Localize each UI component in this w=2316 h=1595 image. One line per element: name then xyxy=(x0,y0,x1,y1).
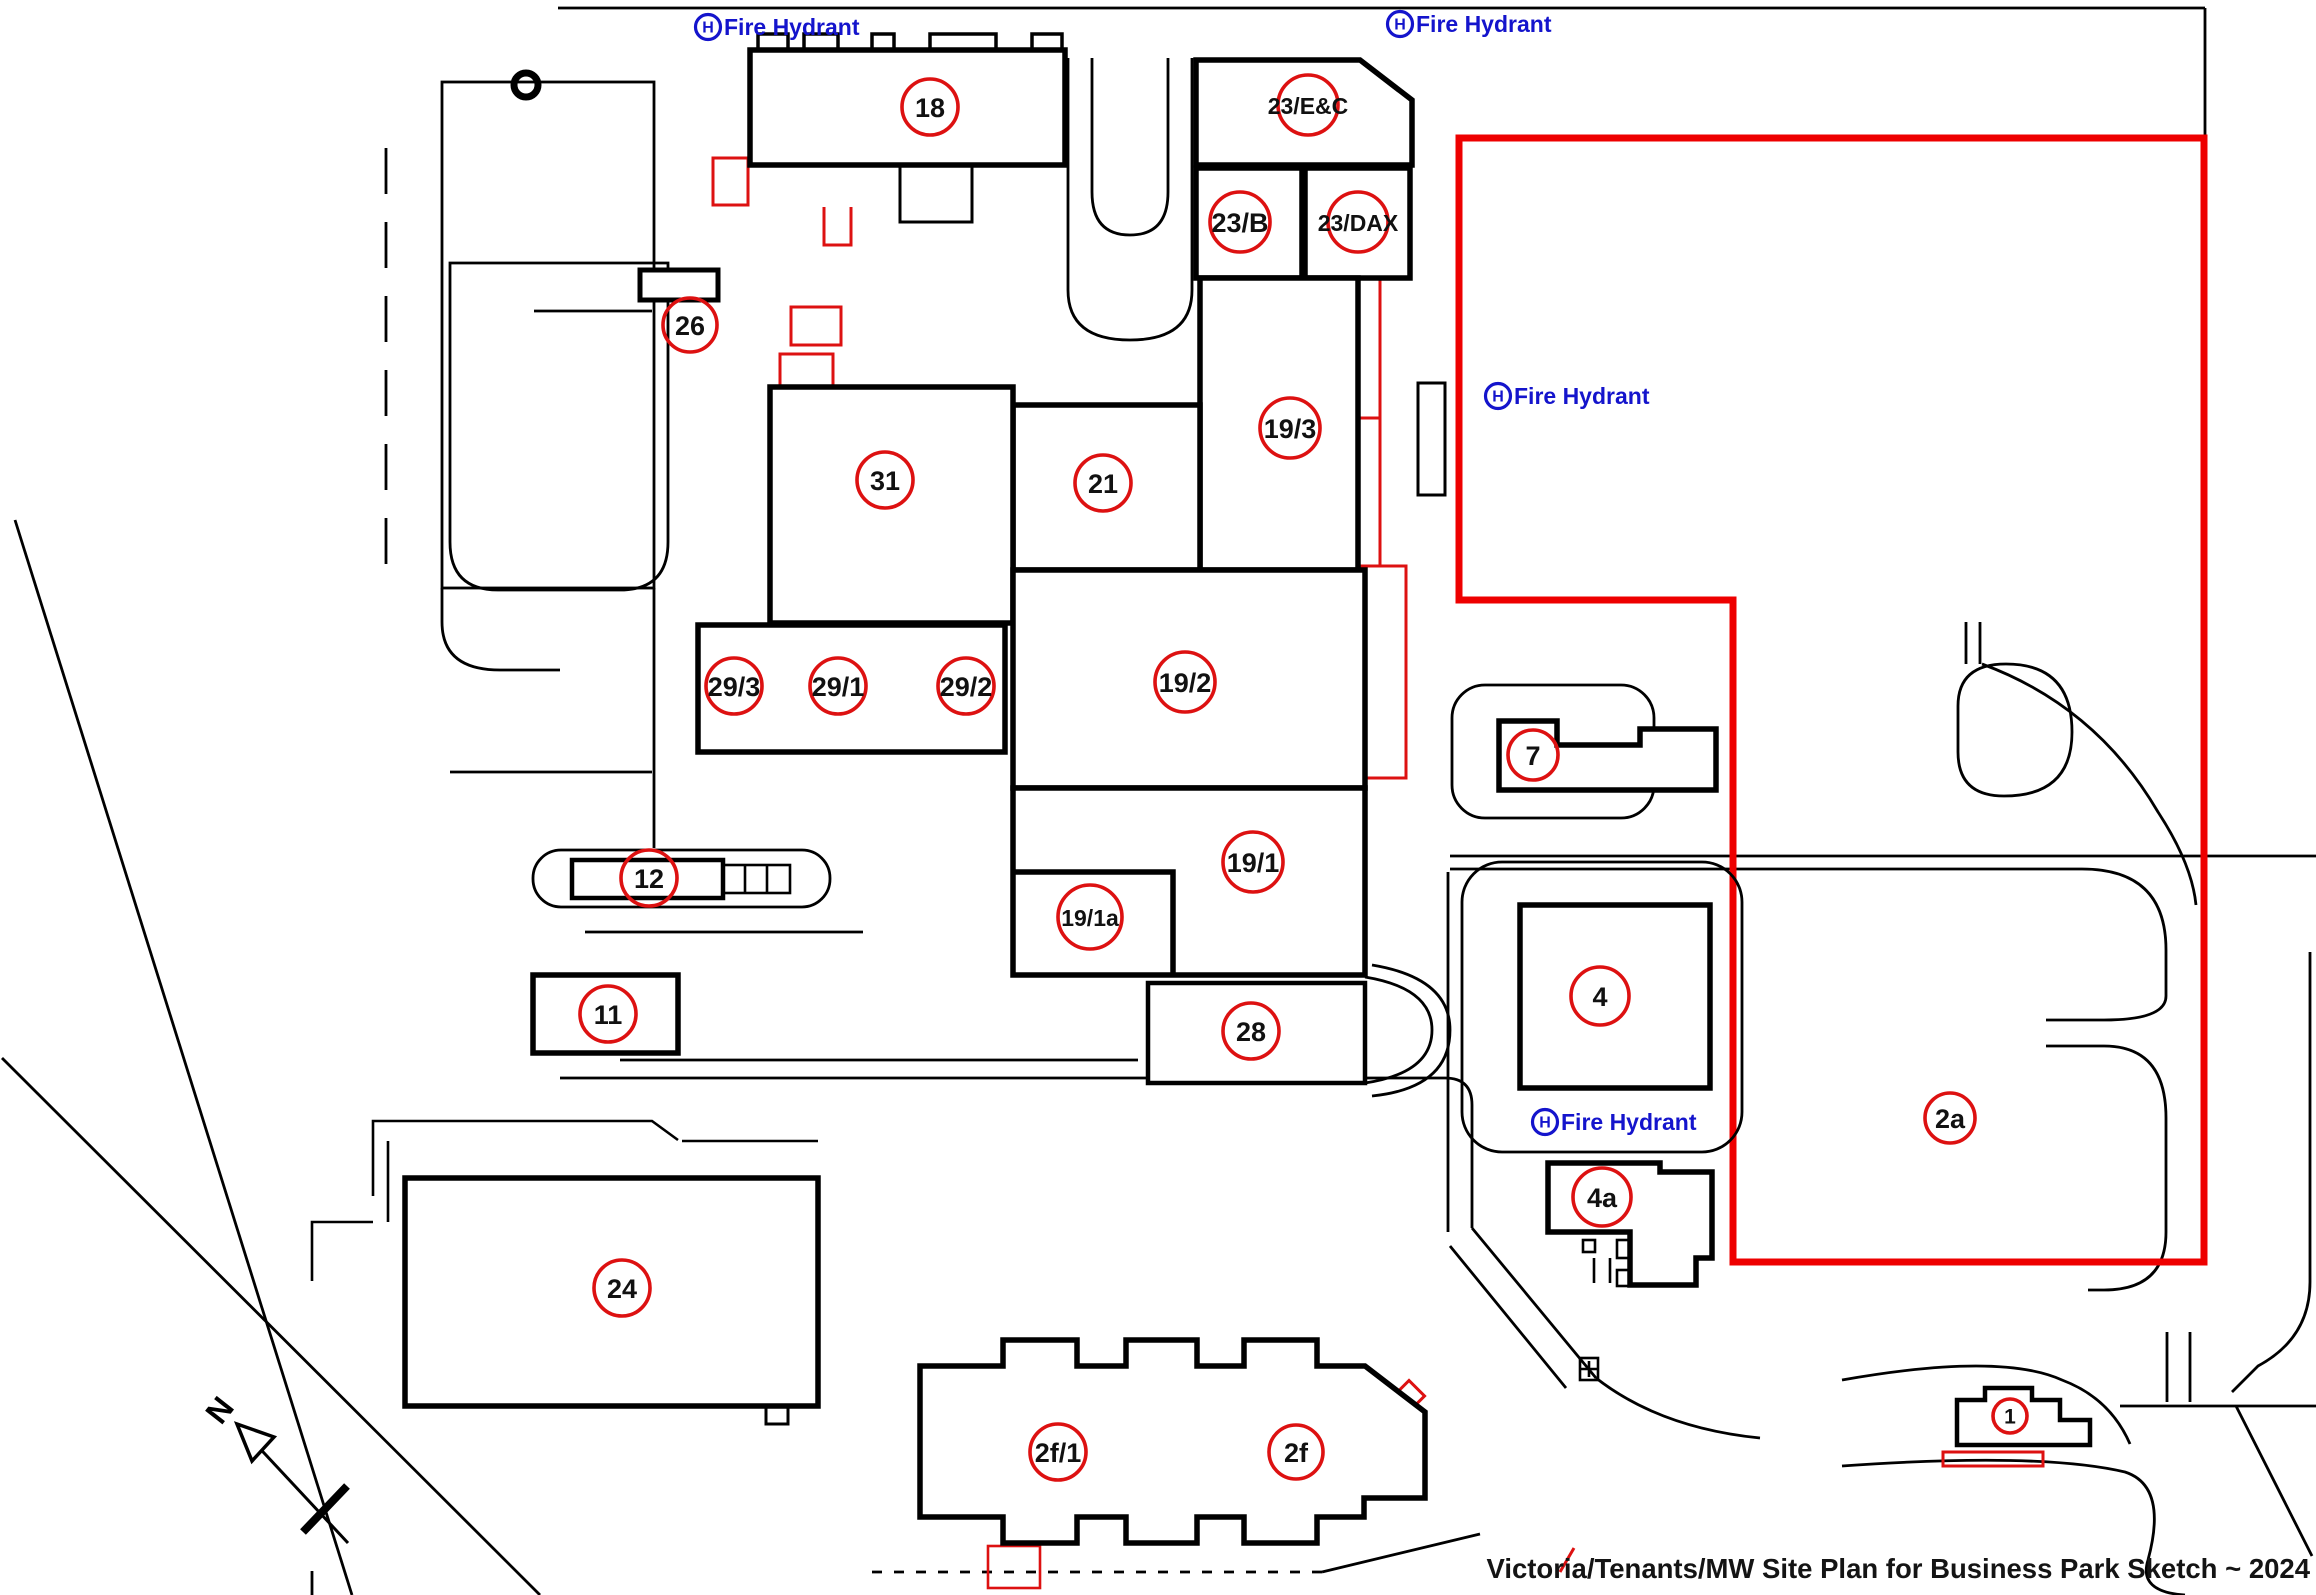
svg-text:H: H xyxy=(1394,17,1406,34)
svg-text:11: 11 xyxy=(594,1000,623,1030)
svg-text:2f/1: 2f/1 xyxy=(1035,1438,1082,1468)
building-18-outline xyxy=(750,34,1065,165)
svg-text:7: 7 xyxy=(1525,741,1540,771)
svg-text:21: 21 xyxy=(1088,469,1118,499)
site-plan-svg: 1823/E&C23/B23/DAX26312119/329/329/129/2… xyxy=(0,0,2316,1595)
fire-hydrant-icon: HFire Hydrant xyxy=(1388,11,1552,37)
site-boundary-red xyxy=(1459,138,2204,1262)
building-marker-26: 26 xyxy=(663,298,717,352)
building-2f-outline xyxy=(920,1340,1425,1543)
svg-text:24: 24 xyxy=(607,1274,637,1304)
svg-text:23/B: 23/B xyxy=(1211,208,1268,238)
north-arrow: N xyxy=(198,1390,348,1543)
building-19-1-outline xyxy=(1013,788,1365,975)
svg-text:H: H xyxy=(1492,389,1504,406)
fire-hydrant-icon: HFire Hydrant xyxy=(1486,383,1650,409)
svg-text:19/2: 19/2 xyxy=(1159,668,1212,698)
svg-text:Fire Hydrant: Fire Hydrant xyxy=(1514,383,1650,409)
svg-text:Fire Hydrant: Fire Hydrant xyxy=(1561,1109,1697,1135)
map-title: Victoria/Tenants/MW Site Plan for Busine… xyxy=(1486,1553,2310,1584)
building-marker-2a: 2a xyxy=(1925,1093,1975,1143)
svg-text:2f: 2f xyxy=(1284,1438,1309,1468)
svg-text:19/1a: 19/1a xyxy=(1061,905,1119,931)
svg-text:29/3: 29/3 xyxy=(708,672,761,702)
site-plan-canvas: 1823/E&C23/B23/DAX26312119/329/329/129/2… xyxy=(0,0,2316,1595)
svg-text:19/1: 19/1 xyxy=(1227,848,1280,878)
svg-text:12: 12 xyxy=(634,864,664,894)
fire-hydrant-icon: HFire Hydrant xyxy=(696,14,860,40)
svg-text:28: 28 xyxy=(1236,1017,1266,1047)
manhole-ring-icon xyxy=(514,73,538,97)
svg-text:29/1: 29/1 xyxy=(812,672,865,702)
svg-text:23/DAX: 23/DAX xyxy=(1318,210,1399,236)
building-4-outline xyxy=(1520,905,1710,1088)
svg-text:19/3: 19/3 xyxy=(1264,414,1317,444)
building-26-outline xyxy=(640,270,718,300)
svg-text:4a: 4a xyxy=(1587,1183,1618,1213)
building-1-outline xyxy=(1957,1388,2090,1445)
svg-text:26: 26 xyxy=(675,311,705,341)
svg-text:31: 31 xyxy=(870,466,900,496)
buildings-layer xyxy=(405,34,2090,1543)
fire-hydrant-icon: HFire Hydrant xyxy=(1533,1109,1697,1135)
svg-text:H: H xyxy=(702,20,714,37)
svg-text:Fire Hydrant: Fire Hydrant xyxy=(1416,11,1552,37)
building-4a-outline xyxy=(1548,1163,1712,1285)
svg-text:2a: 2a xyxy=(1935,1104,1966,1134)
svg-text:23/E&C: 23/E&C xyxy=(1268,93,1349,119)
svg-text:29/2: 29/2 xyxy=(940,672,993,702)
svg-text:1: 1 xyxy=(2004,1406,2016,1429)
svg-text:Fire Hydrant: Fire Hydrant xyxy=(724,14,860,40)
north-arrow-label: N xyxy=(198,1390,241,1430)
svg-text:H: H xyxy=(1539,1115,1551,1132)
svg-text:4: 4 xyxy=(1592,982,1607,1012)
svg-text:18: 18 xyxy=(915,93,945,123)
building-31-outline xyxy=(770,387,1013,623)
